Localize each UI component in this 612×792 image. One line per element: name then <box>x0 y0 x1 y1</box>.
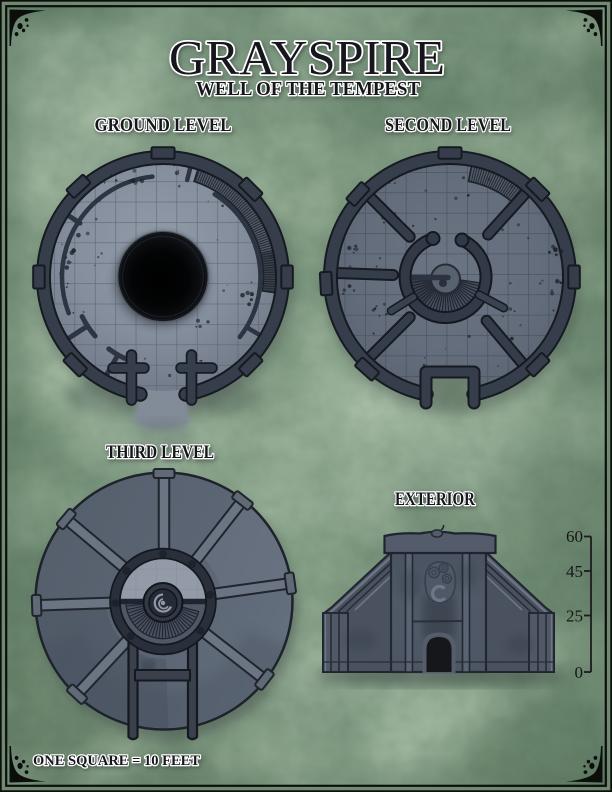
svg-text:GRAYSPIRE: GRAYSPIRE <box>169 30 445 85</box>
svg-text:EXTERIOR: EXTERIOR <box>395 489 475 510</box>
svg-text:25: 25 <box>566 607 583 626</box>
svg-text:THIRD LEVEL: THIRD LEVEL <box>106 442 214 463</box>
svg-text:0: 0 <box>575 663 584 682</box>
svg-text:SECOND LEVEL: SECOND LEVEL <box>385 115 511 136</box>
svg-text:WELL OF THE TEMPEST: WELL OF THE TEMPEST <box>196 78 421 100</box>
svg-text:ONE SQUARE = 10 FEET: ONE SQUARE = 10 FEET <box>33 753 200 769</box>
svg-text:45: 45 <box>566 562 583 581</box>
svg-text:60: 60 <box>566 527 583 546</box>
svg-text:GROUND LEVEL: GROUND LEVEL <box>95 115 232 136</box>
